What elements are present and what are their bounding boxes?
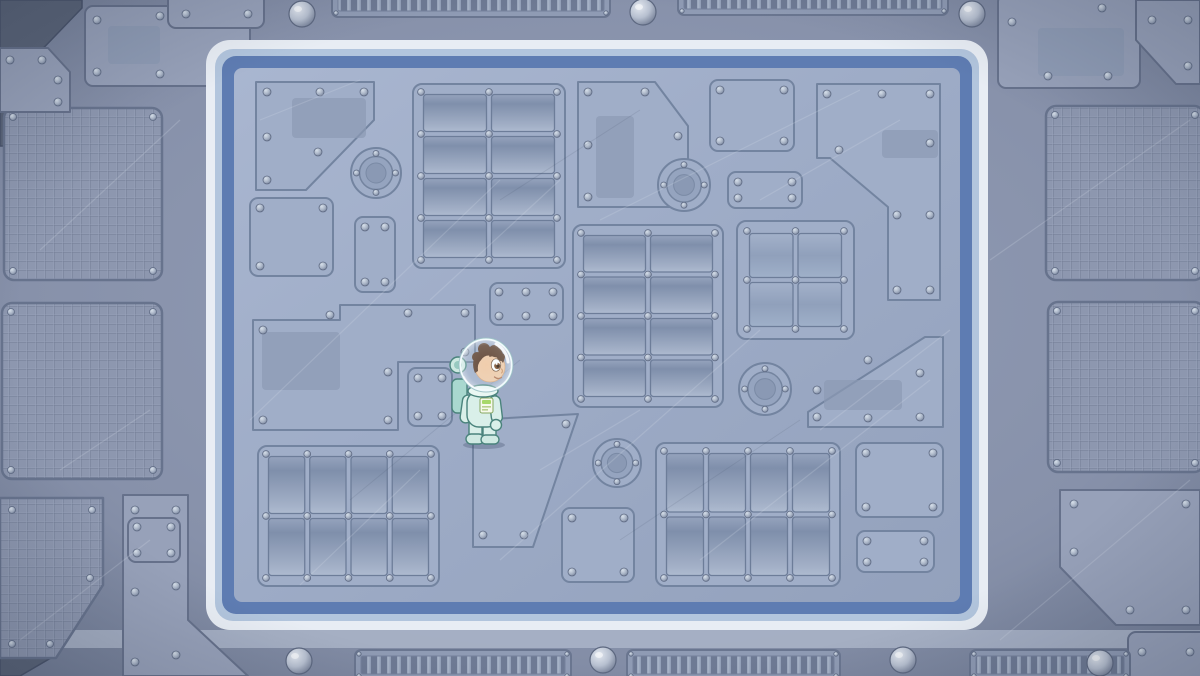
vent-slat bbox=[492, 95, 555, 132]
rivet bbox=[633, 460, 639, 466]
rivet bbox=[1054, 460, 1061, 467]
vent-slat bbox=[751, 517, 788, 576]
vent-slat bbox=[351, 519, 387, 576]
dome-rivet-shine bbox=[595, 652, 603, 658]
rivet bbox=[864, 414, 872, 422]
dome-rivet-shine bbox=[635, 4, 643, 10]
rivet bbox=[486, 131, 493, 138]
rivet bbox=[9, 507, 16, 514]
rivet bbox=[712, 354, 719, 361]
rivet bbox=[792, 228, 799, 235]
rivet bbox=[172, 651, 180, 659]
vent-slat bbox=[709, 517, 746, 576]
vent-slat bbox=[269, 519, 305, 576]
rivet bbox=[418, 173, 425, 180]
rivet bbox=[893, 286, 901, 294]
rivet bbox=[1044, 72, 1052, 80]
rivet bbox=[54, 76, 62, 84]
rivet bbox=[742, 386, 748, 392]
rivet bbox=[841, 326, 848, 333]
rivet bbox=[156, 12, 164, 20]
rivet bbox=[1052, 112, 1059, 119]
rivet bbox=[929, 449, 937, 457]
game-viewport[interactable]: Space station deck - top-down game view … bbox=[0, 0, 1200, 676]
rivet bbox=[788, 194, 796, 202]
plate-recess bbox=[824, 380, 902, 410]
rivet bbox=[244, 10, 252, 18]
rivet bbox=[568, 568, 576, 576]
rivet bbox=[345, 451, 352, 458]
plate-recess bbox=[108, 26, 160, 64]
rivet bbox=[787, 575, 794, 582]
rivet bbox=[345, 513, 352, 520]
rivet bbox=[578, 230, 585, 237]
rivet bbox=[629, 652, 633, 656]
rivet bbox=[578, 271, 585, 278]
rivet bbox=[10, 268, 17, 275]
glove bbox=[491, 420, 502, 431]
rivet bbox=[381, 223, 389, 231]
rivet bbox=[428, 513, 435, 520]
rivet bbox=[345, 575, 352, 582]
rivet bbox=[554, 215, 561, 222]
rivet bbox=[554, 257, 561, 264]
rivet bbox=[438, 412, 446, 420]
chest-badge-line bbox=[482, 409, 488, 411]
vent-slat bbox=[798, 283, 842, 327]
plate-recess bbox=[1038, 28, 1124, 76]
air-grille-slats bbox=[338, 0, 604, 11]
rivet bbox=[1192, 112, 1199, 119]
rivet bbox=[916, 369, 924, 377]
rivet bbox=[357, 652, 361, 656]
rivet bbox=[495, 312, 503, 320]
rivet bbox=[495, 288, 503, 296]
porthole-center bbox=[755, 379, 776, 400]
rivet bbox=[926, 211, 934, 219]
rivet bbox=[762, 366, 768, 372]
vent-slat bbox=[709, 454, 746, 513]
rivet bbox=[1184, 62, 1192, 70]
rivet bbox=[681, 162, 687, 168]
rivet bbox=[734, 194, 742, 202]
rivet bbox=[131, 506, 139, 514]
rivet bbox=[93, 16, 101, 24]
rivet bbox=[703, 448, 710, 455]
rivet bbox=[172, 582, 180, 590]
rivet bbox=[1052, 268, 1059, 275]
rivet bbox=[578, 313, 585, 320]
dome-rivet bbox=[890, 647, 916, 673]
rivet bbox=[834, 652, 838, 656]
dome-rivet-shine bbox=[895, 652, 903, 658]
vent-slat bbox=[584, 319, 646, 356]
mesh-panel bbox=[2, 303, 162, 479]
rivet bbox=[829, 448, 836, 455]
rivet bbox=[522, 312, 530, 320]
rivet bbox=[787, 448, 794, 455]
rivet bbox=[428, 451, 435, 458]
rivet bbox=[381, 278, 389, 286]
rivet bbox=[1184, 16, 1192, 24]
rivet bbox=[150, 309, 157, 316]
rivet bbox=[373, 151, 379, 157]
dome-rivet bbox=[630, 0, 656, 25]
rivet bbox=[792, 277, 799, 284]
plate-recess bbox=[596, 116, 634, 198]
rivet bbox=[256, 262, 264, 270]
rivet bbox=[259, 416, 267, 424]
vent-slat bbox=[584, 277, 646, 314]
dome-rivet-shine bbox=[1092, 655, 1100, 661]
rivet bbox=[1186, 648, 1194, 656]
rivet bbox=[645, 313, 652, 320]
rivet bbox=[263, 88, 271, 96]
rivet bbox=[150, 467, 157, 474]
vent-slat bbox=[492, 179, 555, 216]
vent-slat bbox=[392, 457, 428, 514]
rivet bbox=[89, 507, 96, 514]
rivet bbox=[361, 278, 369, 286]
rivet bbox=[926, 286, 934, 294]
rivet bbox=[916, 413, 924, 421]
rivet bbox=[263, 513, 270, 520]
rivet bbox=[863, 537, 871, 545]
rivet bbox=[562, 420, 570, 428]
rivet bbox=[319, 262, 327, 270]
rivet bbox=[604, 11, 608, 15]
chest-badge-line bbox=[482, 406, 491, 408]
air-grille-slats bbox=[633, 656, 834, 674]
rivet bbox=[486, 173, 493, 180]
rivet bbox=[182, 10, 190, 18]
air-grille-slats bbox=[361, 656, 565, 674]
rivet bbox=[334, 11, 338, 15]
vent-slat bbox=[424, 95, 487, 132]
vent-slat bbox=[392, 519, 428, 576]
rivet bbox=[418, 215, 425, 222]
rivet bbox=[1182, 606, 1190, 614]
rivet bbox=[712, 230, 719, 237]
chest-badge-stripe bbox=[482, 400, 491, 404]
rivet bbox=[256, 204, 264, 212]
air-grille-slats bbox=[684, 0, 942, 9]
rivet bbox=[150, 268, 157, 275]
rivet bbox=[486, 89, 493, 96]
rivet bbox=[813, 413, 821, 421]
rivet bbox=[716, 86, 724, 94]
rivet bbox=[878, 90, 886, 98]
dome-rivet bbox=[289, 1, 315, 27]
vent-slat bbox=[584, 236, 646, 273]
rivet bbox=[823, 90, 831, 98]
rivet bbox=[354, 170, 360, 176]
vent-slat bbox=[798, 234, 842, 278]
rivet bbox=[1192, 460, 1199, 467]
rivet bbox=[304, 513, 311, 520]
rivet bbox=[893, 211, 901, 219]
rivet bbox=[745, 511, 752, 518]
rivet bbox=[360, 88, 368, 96]
rivet bbox=[1124, 652, 1128, 656]
dome-rivet bbox=[959, 1, 985, 27]
rivet bbox=[862, 449, 870, 457]
rivet bbox=[645, 354, 652, 361]
dome-rivet-shine bbox=[964, 6, 972, 12]
rivet bbox=[263, 575, 270, 582]
rivet bbox=[414, 374, 422, 382]
rivet bbox=[404, 309, 412, 317]
dome-rivet bbox=[286, 648, 312, 674]
rivet bbox=[645, 396, 652, 403]
dome-rivet bbox=[590, 647, 616, 673]
mesh-panel bbox=[1046, 106, 1200, 280]
rivet bbox=[259, 326, 267, 334]
rivet bbox=[1192, 308, 1199, 315]
plate-recess bbox=[262, 332, 340, 390]
rivet bbox=[744, 277, 751, 284]
rivet bbox=[787, 511, 794, 518]
rivet bbox=[549, 288, 557, 296]
rivet bbox=[712, 313, 719, 320]
rivet bbox=[829, 511, 836, 518]
rivet bbox=[701, 182, 707, 188]
rivet bbox=[9, 641, 16, 648]
rivet bbox=[47, 641, 54, 648]
rivet bbox=[549, 312, 557, 320]
vent-slat bbox=[310, 457, 346, 514]
vent-slat bbox=[651, 236, 713, 273]
rivet bbox=[38, 56, 46, 64]
rivet bbox=[614, 441, 620, 447]
vent-slat bbox=[750, 283, 794, 327]
rivet bbox=[734, 178, 742, 186]
rivet bbox=[461, 309, 469, 317]
rivet bbox=[641, 88, 649, 96]
rivet bbox=[486, 257, 493, 264]
vent-slat bbox=[651, 360, 713, 397]
rivet bbox=[680, 9, 684, 13]
rivet bbox=[744, 228, 751, 235]
rivet bbox=[813, 386, 821, 394]
rivet bbox=[1138, 648, 1146, 656]
rivet bbox=[10, 114, 17, 121]
rivet bbox=[661, 575, 668, 582]
rivet bbox=[479, 531, 487, 539]
rivet bbox=[1104, 72, 1112, 80]
rivet bbox=[93, 68, 101, 76]
rivet bbox=[1098, 4, 1106, 12]
rivet bbox=[744, 326, 751, 333]
rivet bbox=[578, 354, 585, 361]
rivet bbox=[712, 271, 719, 278]
rivet bbox=[681, 202, 687, 208]
rivet bbox=[384, 368, 392, 376]
rivet bbox=[841, 228, 848, 235]
vent-slat bbox=[793, 517, 830, 576]
rivet bbox=[361, 223, 369, 231]
vent-slat bbox=[269, 457, 305, 514]
vent-slat bbox=[584, 360, 646, 397]
rivet bbox=[54, 98, 62, 106]
rivet bbox=[131, 588, 139, 596]
metal-plate bbox=[728, 172, 802, 208]
rivet bbox=[584, 193, 592, 201]
rivet bbox=[645, 271, 652, 278]
rivet bbox=[1054, 308, 1061, 315]
rivet bbox=[1192, 268, 1199, 275]
rivet bbox=[554, 173, 561, 180]
dome-rivet-shine bbox=[294, 6, 302, 12]
rivet bbox=[263, 451, 270, 458]
game-stage: Space station deck - top-down game view … bbox=[0, 0, 1200, 676]
rivet bbox=[150, 114, 157, 121]
dome-rivet-shine bbox=[291, 653, 299, 659]
rivet bbox=[414, 412, 422, 420]
rivet bbox=[1126, 606, 1134, 614]
rivet bbox=[87, 575, 94, 582]
rivet bbox=[386, 513, 393, 520]
rivet bbox=[319, 204, 327, 212]
rivet bbox=[780, 86, 788, 94]
vent-slat bbox=[651, 319, 713, 356]
rivet bbox=[703, 511, 710, 518]
mesh-panel bbox=[4, 108, 162, 280]
vent-slat bbox=[492, 221, 555, 258]
rivet bbox=[1008, 18, 1016, 26]
vent-slat bbox=[424, 179, 487, 216]
rivet bbox=[972, 652, 976, 656]
rivet bbox=[926, 139, 934, 147]
rivet bbox=[8, 467, 15, 474]
rivet bbox=[1070, 500, 1078, 508]
vent-slat bbox=[310, 519, 346, 576]
rivet bbox=[304, 451, 311, 458]
rivet bbox=[792, 326, 799, 333]
rivet bbox=[645, 230, 652, 237]
rivet bbox=[780, 137, 788, 145]
rivet bbox=[703, 575, 710, 582]
rivet bbox=[862, 503, 870, 511]
rivet bbox=[782, 386, 788, 392]
rivet bbox=[841, 277, 848, 284]
rivet bbox=[167, 523, 175, 531]
vent-slat bbox=[651, 277, 713, 314]
rivet bbox=[172, 506, 180, 514]
vent-slat bbox=[492, 137, 555, 174]
rivet bbox=[762, 406, 768, 412]
rivet bbox=[326, 311, 334, 319]
vent-slat bbox=[667, 517, 704, 576]
vent-slat bbox=[351, 457, 387, 514]
rivet bbox=[554, 131, 561, 138]
porthole-center bbox=[366, 163, 386, 183]
rivet bbox=[386, 451, 393, 458]
rivet bbox=[829, 575, 836, 582]
rivet bbox=[863, 558, 871, 566]
rivet bbox=[131, 658, 139, 666]
rivet bbox=[314, 148, 322, 156]
rivet bbox=[418, 89, 425, 96]
rivet bbox=[620, 514, 628, 522]
rivet bbox=[8, 309, 15, 316]
rivet bbox=[661, 448, 668, 455]
rivet bbox=[167, 549, 175, 557]
rivet bbox=[1182, 500, 1190, 508]
rivet bbox=[263, 176, 271, 184]
rivet bbox=[568, 514, 576, 522]
rivet bbox=[1148, 16, 1156, 24]
rivet bbox=[520, 531, 528, 539]
rivet bbox=[920, 537, 928, 545]
rivet bbox=[156, 70, 164, 78]
rivet bbox=[1070, 548, 1078, 556]
rivet bbox=[6, 56, 14, 64]
rivet bbox=[674, 132, 682, 140]
rivet bbox=[745, 575, 752, 582]
rivet bbox=[386, 575, 393, 582]
rivet bbox=[428, 575, 435, 582]
rivet bbox=[578, 396, 585, 403]
right-boot bbox=[481, 435, 499, 444]
vent-slat bbox=[424, 221, 487, 258]
rivet bbox=[418, 131, 425, 138]
vent-slat bbox=[424, 137, 487, 174]
rivet bbox=[584, 88, 592, 96]
rivet bbox=[942, 9, 946, 13]
rivet bbox=[864, 356, 872, 364]
rivet bbox=[620, 568, 628, 576]
rivet bbox=[565, 652, 569, 656]
rivet bbox=[712, 396, 719, 403]
rivet bbox=[438, 374, 446, 382]
vent-slat bbox=[750, 234, 794, 278]
rivet bbox=[373, 190, 379, 196]
rivet bbox=[926, 90, 934, 98]
rivet bbox=[393, 170, 399, 176]
rivet bbox=[486, 215, 493, 222]
vent-slat bbox=[667, 454, 704, 513]
vent-slat bbox=[751, 454, 788, 513]
rivet bbox=[384, 416, 392, 424]
rivet bbox=[595, 460, 601, 466]
mesh-panel bbox=[1048, 302, 1200, 472]
rivet bbox=[929, 503, 937, 511]
rivet bbox=[920, 558, 928, 566]
rivet bbox=[522, 288, 530, 296]
plate-recess bbox=[292, 98, 366, 138]
dome-rivet bbox=[1087, 650, 1113, 676]
rivet bbox=[263, 133, 271, 141]
rivet bbox=[554, 89, 561, 96]
rivet bbox=[614, 479, 620, 485]
rivet bbox=[716, 137, 724, 145]
rivet bbox=[133, 523, 141, 531]
